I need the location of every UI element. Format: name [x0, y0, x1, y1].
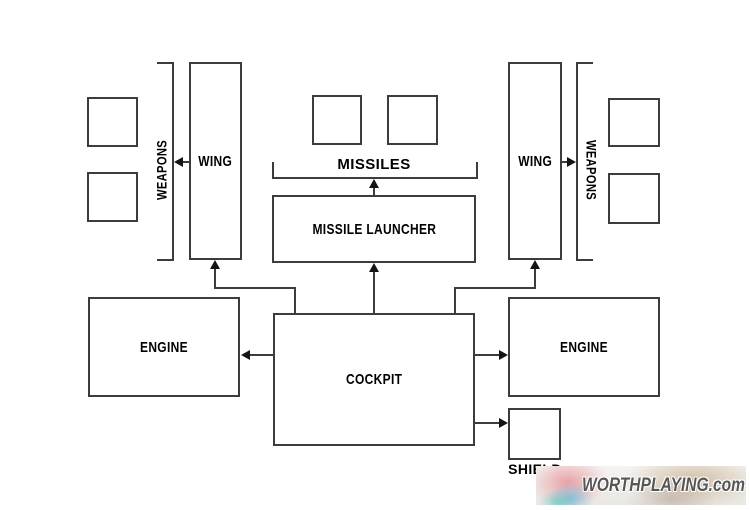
- engine-left-label: ENGINE: [140, 339, 188, 356]
- arrow-line: [454, 287, 456, 313]
- missile-slot-box: [312, 95, 362, 145]
- weapon-slot-box: [87, 97, 138, 147]
- arrow-line: [373, 271, 375, 313]
- arrow-line: [214, 269, 216, 287]
- cockpit-label: COCKPIT: [346, 371, 402, 388]
- arrow-line: [534, 269, 536, 287]
- weapons-left-label-area: WEAPONS: [147, 110, 177, 230]
- weapons-left-bracket-tick: [157, 62, 174, 64]
- engine-right-box: ENGINE: [508, 297, 660, 397]
- arrow-line: [214, 287, 296, 289]
- weapon-slot-box: [608, 98, 660, 147]
- weapons-right-bracket-tick: [576, 259, 593, 261]
- arrow-line: [475, 354, 499, 356]
- wing-left-label: WING: [199, 153, 233, 170]
- weapon-slot-box: [608, 173, 660, 224]
- weapons-left-bracket-tick: [157, 259, 174, 261]
- watermark-text: WORTHPLAYING.com: [582, 475, 745, 497]
- arrowhead-left: [241, 350, 250, 360]
- shield-box: [508, 408, 561, 460]
- missiles-bracket-tick: [272, 162, 274, 179]
- weapons-right-bracket-tick: [576, 62, 593, 64]
- arrow-line: [373, 187, 375, 195]
- cockpit-box: COCKPIT: [273, 313, 475, 446]
- arrowhead-up: [210, 260, 220, 269]
- arrowhead-up: [530, 260, 540, 269]
- arrowhead-right: [499, 418, 508, 428]
- engine-left-box: ENGINE: [88, 297, 240, 397]
- arrow-line: [294, 287, 296, 313]
- engine-right-label: ENGINE: [560, 339, 608, 356]
- missile-launcher-box: MISSILE LAUNCHER: [272, 195, 476, 263]
- missiles-label: MISSILES: [337, 156, 410, 173]
- arrowhead-right: [567, 157, 576, 167]
- arrow-line: [454, 287, 536, 289]
- arrow-line: [250, 354, 273, 356]
- weapon-slot-box: [87, 172, 138, 222]
- missiles-bracket-tick: [476, 162, 478, 179]
- weapons-left-label: WEAPONS: [154, 140, 170, 200]
- missile-slot-box: [387, 95, 438, 145]
- wing-right-box: WING: [508, 62, 562, 260]
- arrow-line: [475, 422, 499, 424]
- weapons-right-label-area: WEAPONS: [577, 110, 607, 230]
- missiles-label-area: MISSILES: [274, 156, 474, 174]
- arrowhead-left: [174, 157, 183, 167]
- wing-left-box: WING: [189, 62, 242, 260]
- arrowhead-up: [369, 179, 379, 188]
- worthplaying-watermark: WORTHPLAYING.com: [536, 466, 746, 505]
- arrowhead-up: [369, 263, 379, 272]
- weapons-right-label: WEAPONS: [584, 140, 600, 200]
- missile-launcher-label: MISSILE LAUNCHER: [312, 221, 436, 238]
- ship-layout-diagram: WEAPONS WING MISSILES MISSILE LAUNCHER W…: [0, 0, 750, 510]
- arrowhead-right: [499, 350, 508, 360]
- wing-right-label: WING: [518, 153, 552, 170]
